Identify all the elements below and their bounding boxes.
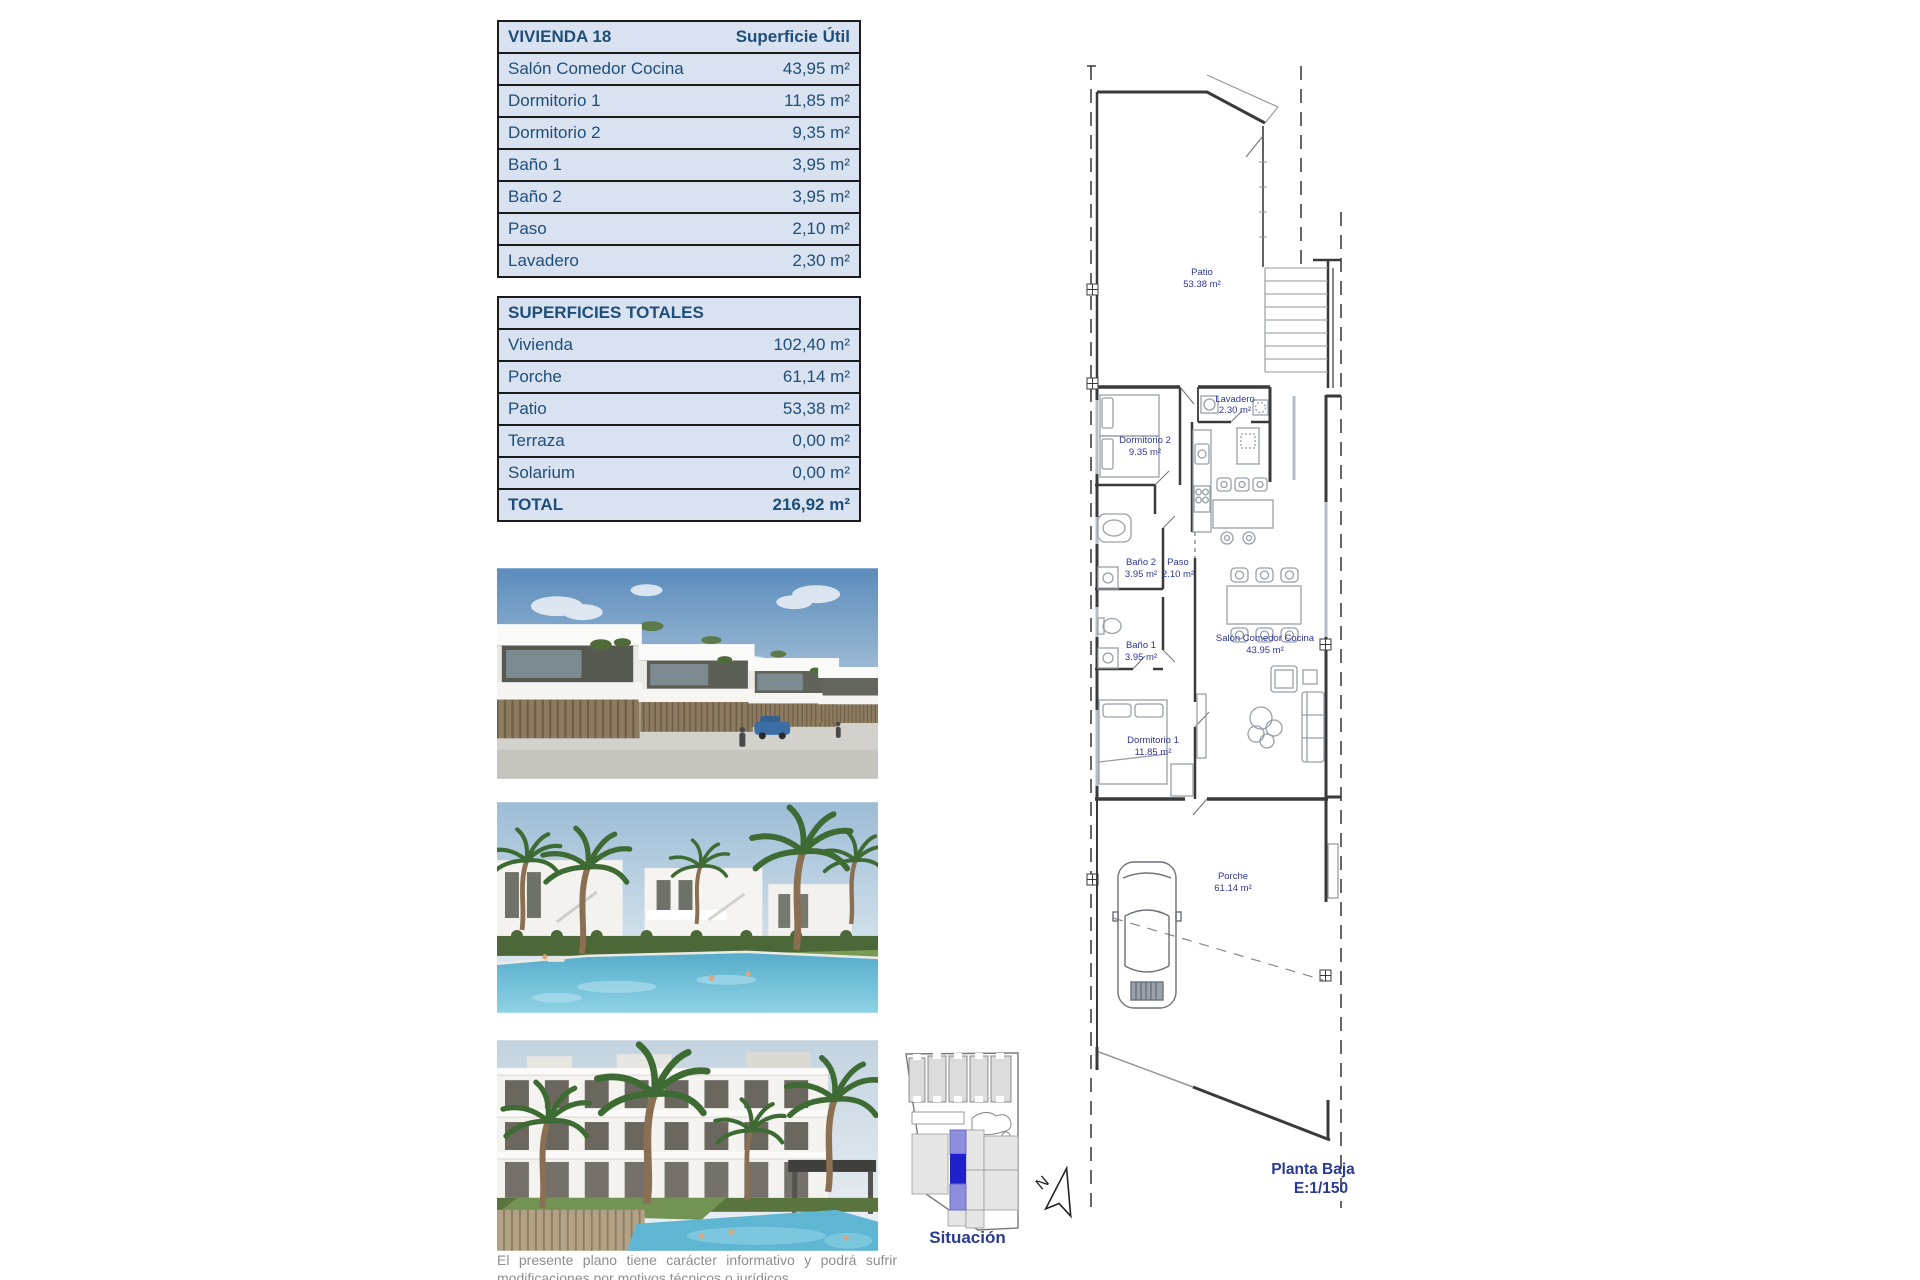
bano2-area: 3.95 m² bbox=[1125, 569, 1157, 580]
render-photo-street bbox=[497, 568, 878, 779]
table-row: Vivienda102,40 m² bbox=[498, 329, 860, 361]
table-header-row: SUPERFICIES TOTALES bbox=[498, 297, 860, 329]
highlight-unit bbox=[950, 1154, 966, 1184]
dormitorio2-label: Dormitorio 2 bbox=[1119, 435, 1171, 446]
salon-area: 43.95 m² bbox=[1246, 645, 1284, 656]
room-area: 3,95 m² bbox=[679, 149, 860, 181]
total-area: 61,14 m² bbox=[679, 361, 860, 393]
pool-highlight bbox=[687, 1227, 827, 1245]
apartments-render-image bbox=[497, 1040, 878, 1251]
situacion-map-image bbox=[900, 1042, 1035, 1237]
porche-label: Porche bbox=[1218, 871, 1248, 882]
room-area: 3,95 m² bbox=[679, 181, 860, 213]
table-row: Paso2,10 m² bbox=[498, 213, 860, 245]
table-row: Dormitorio 29,35 m² bbox=[498, 117, 860, 149]
grand-total-label: TOTAL bbox=[498, 489, 679, 521]
total-area: 53,38 m² bbox=[679, 393, 860, 425]
total-label: Patio bbox=[498, 393, 679, 425]
vivienda-table: VIVIENDA 18 Superficie Útil Salón Comedo… bbox=[497, 20, 861, 278]
table-row: Patio53,38 m² bbox=[498, 393, 860, 425]
room-label: Salón Comedor Cocina bbox=[498, 53, 679, 85]
total-area: 0,00 m² bbox=[679, 457, 860, 489]
bano1-area: 3.95 m² bbox=[1125, 652, 1157, 663]
dormitorio1-label: Dormitorio 1 bbox=[1127, 735, 1179, 746]
totales-title: SUPERFICIES TOTALES bbox=[498, 297, 860, 329]
render-photo-pool bbox=[497, 802, 878, 1013]
total-label: Solarium bbox=[498, 457, 679, 489]
room-label: Paso bbox=[498, 213, 679, 245]
table-row: Baño 23,95 m² bbox=[498, 181, 860, 213]
dormitorio1-area: 11.85 m² bbox=[1135, 747, 1172, 758]
plan-title: Planta Baja bbox=[1271, 1161, 1355, 1178]
room-area: 43,95 m² bbox=[679, 53, 860, 85]
grand-total-area: 216,92 m² bbox=[679, 489, 860, 521]
stairs bbox=[1265, 260, 1341, 388]
vivienda-table-wrap: VIVIENDA 18 Superficie Útil Salón Comedo… bbox=[497, 20, 861, 278]
table-row: Terraza0,00 m² bbox=[498, 425, 860, 457]
table-row: Dormitorio 111,85 m² bbox=[498, 85, 860, 117]
table-row: Porche61,14 m² bbox=[498, 361, 860, 393]
lavadero-area: 2.30 m² bbox=[1219, 405, 1251, 416]
bano1-fixtures bbox=[1098, 618, 1121, 668]
salon-label: Salón Comedor Cocina bbox=[1216, 633, 1315, 644]
brochure-page: VIVIENDA 18 Superficie Útil Salón Comedo… bbox=[0, 0, 1920, 1280]
plan-caption: Planta Baja E:1/150 bbox=[1271, 1161, 1355, 1197]
patio-label: Patio bbox=[1191, 267, 1213, 278]
patio-zone bbox=[1097, 75, 1278, 387]
room-area: 2,30 m² bbox=[679, 245, 860, 277]
total-label: Porche bbox=[498, 361, 679, 393]
parking-strip bbox=[912, 1112, 964, 1124]
highlight-unit-bottom bbox=[950, 1184, 966, 1210]
situacion-map bbox=[900, 1042, 1035, 1237]
room-label: Lavadero bbox=[498, 245, 679, 277]
porche-area: 61.14 m² bbox=[1214, 883, 1252, 894]
pool-render-image bbox=[497, 802, 878, 1013]
superficie-util-header: Superficie Útil bbox=[679, 21, 860, 53]
table-row: Salón Comedor Cocina43,95 m² bbox=[498, 53, 860, 85]
highlight-unit-top bbox=[950, 1130, 966, 1154]
room-label: Baño 1 bbox=[498, 149, 679, 181]
lavadero-label: Lavadero bbox=[1215, 394, 1255, 405]
room-area: 9,35 m² bbox=[679, 117, 860, 149]
upper-buildings bbox=[909, 1056, 1011, 1102]
total-label: Terraza bbox=[498, 425, 679, 457]
bano1-label: Baño 1 bbox=[1126, 640, 1156, 651]
total-area: 102,40 m² bbox=[679, 329, 860, 361]
render-photo-apartments bbox=[497, 1040, 878, 1251]
north-arrow-glyph bbox=[1045, 1166, 1080, 1216]
spa bbox=[824, 1233, 872, 1249]
paso-label: Paso bbox=[1167, 557, 1189, 568]
street-render-image bbox=[497, 568, 878, 779]
bano2-label: Baño 2 bbox=[1126, 557, 1156, 568]
floor-plan: Patio 53.38 m² Lavadero 2.30 m² Dormitor… bbox=[1085, 62, 1375, 1212]
total-label: Vivienda bbox=[498, 329, 679, 361]
vivienda-title: VIVIENDA 18 bbox=[498, 21, 679, 53]
room-label: Dormitorio 2 bbox=[498, 117, 679, 149]
salon-furniture bbox=[1197, 568, 1324, 762]
table-header-row: VIVIENDA 18 Superficie Útil bbox=[498, 21, 860, 53]
paso-area: 2.10 m² bbox=[1162, 569, 1194, 580]
dormitorio2-area: 9.35 m² bbox=[1129, 447, 1161, 458]
room-area: 2,10 m² bbox=[679, 213, 860, 245]
kitchen-island bbox=[1213, 478, 1273, 544]
table-row: Baño 13,95 m² bbox=[498, 149, 860, 181]
plan-scale: E:1/150 bbox=[1294, 1180, 1348, 1197]
grand-total-row: TOTAL216,92 m² bbox=[498, 489, 860, 521]
situacion-caption: Situación bbox=[900, 1228, 1035, 1248]
north-arrow-icon: N bbox=[1028, 1158, 1088, 1228]
totales-table: SUPERFICIES TOTALES Vivienda102,40 m² Po… bbox=[497, 296, 861, 522]
north-arrow: N bbox=[1028, 1158, 1088, 1228]
total-area: 0,00 m² bbox=[679, 425, 860, 457]
room-label: Dormitorio 1 bbox=[498, 85, 679, 117]
road bbox=[497, 750, 878, 779]
floor-plan-drawing: Patio 53.38 m² Lavadero 2.30 m² Dormitor… bbox=[1085, 62, 1375, 1212]
totales-table-wrap: SUPERFICIES TOTALES Vivienda102,40 m² Po… bbox=[497, 296, 861, 522]
table-row: Lavadero2,30 m² bbox=[498, 245, 860, 277]
wood-fence bbox=[497, 1210, 645, 1251]
north-label: N bbox=[1033, 1173, 1053, 1193]
room-label: Baño 2 bbox=[498, 181, 679, 213]
room-area: 11,85 m² bbox=[679, 85, 860, 117]
patio-area: 53.38 m² bbox=[1183, 279, 1221, 290]
table-row: Solarium0,00 m² bbox=[498, 457, 860, 489]
disclaimer-text: El presente plano tiene carácter informa… bbox=[497, 1252, 897, 1280]
